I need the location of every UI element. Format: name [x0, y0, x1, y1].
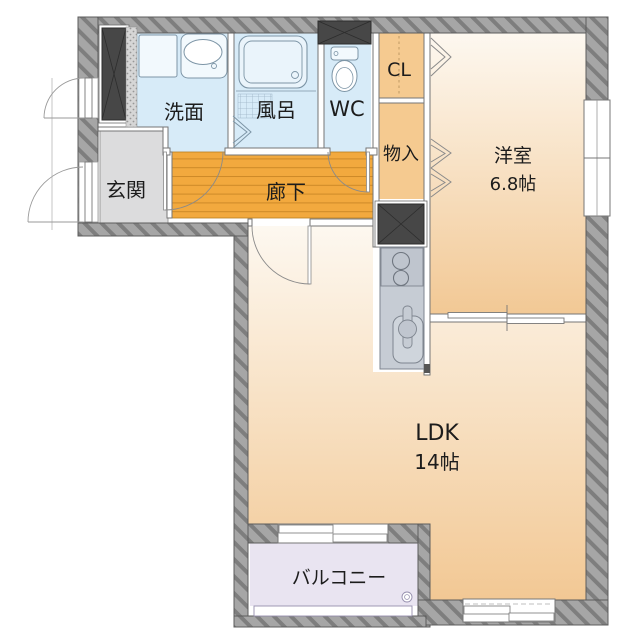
room-label-rouka: 廊下	[266, 180, 306, 204]
room-label-genkan: 玄関	[106, 178, 146, 202]
kitchen-counter-symbol	[380, 247, 430, 373]
door-leaf	[85, 162, 92, 222]
washbasin-symbol	[181, 34, 227, 78]
wall-ldk-left	[234, 236, 248, 627]
floorplan-svg: 洗面 風呂 WC CL 物入 玄関 廊下 洋室 6.8帖 LDK 14帖 バルコ…	[0, 0, 640, 640]
wall-entry-bottom	[78, 223, 248, 236]
room-label-balcony: バルコニー	[292, 567, 387, 589]
wall-corridor-ldk-b	[310, 219, 373, 226]
room-size-youshitsu: 6.8帖	[490, 174, 537, 195]
wall-balcony-right-segment	[388, 524, 418, 543]
stipple-wall-strip	[126, 27, 137, 127]
floorplan-canvas: 洗面 風呂 WC CL 物入 玄関 廊下 洋室 6.8帖 LDK 14帖 バルコ…	[0, 0, 640, 640]
room-label-monoire: 物入	[383, 144, 419, 165]
entrance-door	[28, 162, 98, 222]
room-label-cl: CL	[387, 59, 411, 81]
toilet-symbol	[331, 47, 358, 92]
wall-corridor-ldk-a	[248, 219, 252, 226]
wall-balcony-left-segment	[248, 524, 278, 543]
wall-corridor-segment-b	[225, 148, 330, 155]
door-leaf	[85, 78, 92, 118]
washing-machine-pan-symbol	[139, 35, 177, 77]
pipe-shaft-kitchen	[375, 201, 427, 247]
stove-symbol	[381, 248, 423, 286]
wall-furo-wc	[318, 44, 324, 152]
door-leaf	[164, 152, 167, 210]
room-label-furo: 風呂	[256, 98, 296, 122]
wall-senmen-furo	[228, 33, 234, 152]
counter-end-cap	[424, 364, 430, 373]
window-ldk-bottom	[463, 599, 555, 622]
room-label-senmen: 洗面	[164, 100, 204, 124]
balcony-rail	[254, 606, 412, 616]
door-swing-arc	[28, 167, 83, 222]
room-size-ldk: 14帖	[414, 450, 459, 474]
pipe-shaft-left	[99, 25, 129, 123]
room-label-ldk: LDK	[415, 421, 459, 446]
duct-above-wc	[318, 21, 371, 44]
window-ldk-balcony	[278, 524, 388, 543]
window-youshitsu-right	[584, 100, 610, 216]
door-leaf	[367, 152, 370, 192]
balcony-drain-symbol	[402, 592, 412, 602]
genkan-step-edge	[167, 152, 172, 218]
wall-genkan-top	[98, 127, 168, 131]
balcony-parapet	[234, 616, 426, 627]
wall-cl-monoire	[379, 98, 424, 103]
room-label-youshitsu: 洋室	[494, 145, 532, 167]
faucet-head	[399, 320, 417, 338]
room-label-wc: WC	[329, 97, 364, 121]
door-leaf	[308, 226, 311, 284]
